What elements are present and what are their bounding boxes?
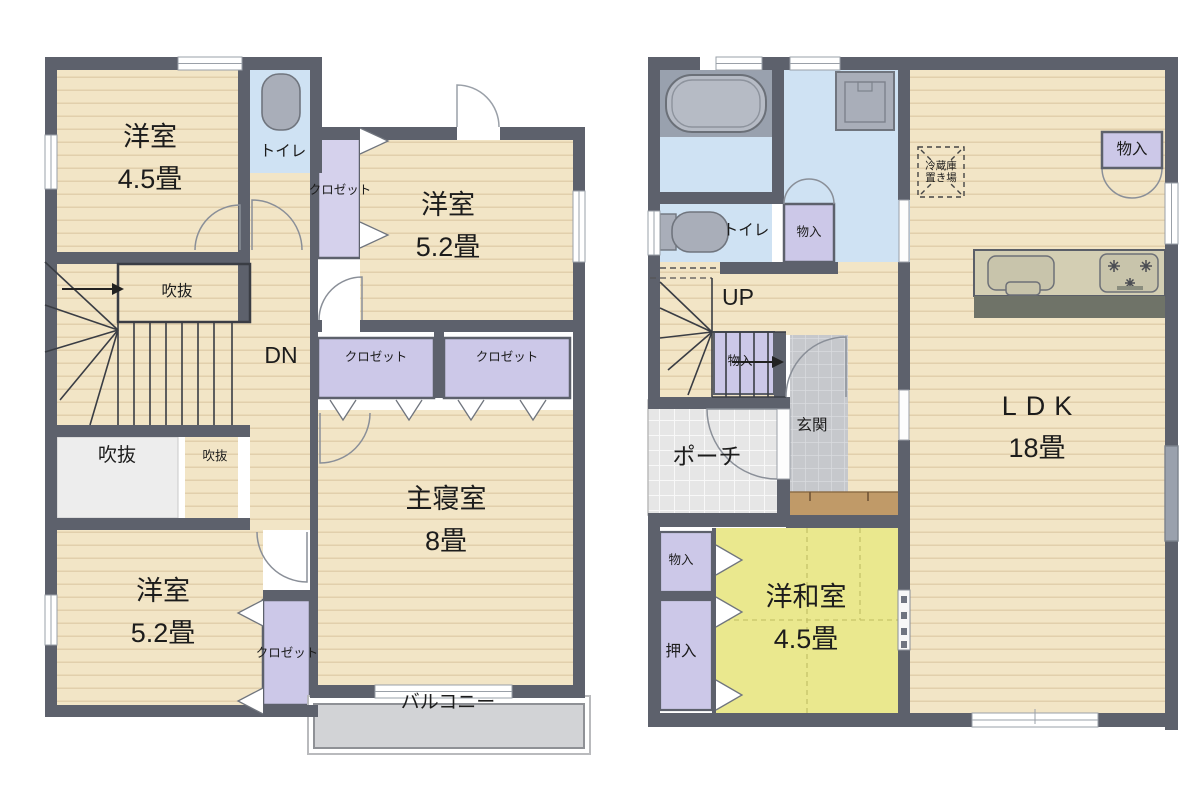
f1-kitchen: [974, 250, 1165, 318]
f2-stairs-floor: [45, 258, 250, 425]
f1-tatami-sliding-door: [898, 590, 910, 650]
f2-closet-a: [318, 338, 434, 398]
room-label-balcony: バルコニー: [401, 692, 496, 714]
room-label-void-stairs: 吹抜: [161, 283, 192, 301]
room-label-storage-ldk: 物入: [1116, 141, 1147, 159]
room-label-ldk: LDK 18畳: [993, 385, 1082, 469]
stairs-up-label: UP: [722, 284, 754, 310]
room-label-storage-tatami: 物入: [668, 553, 693, 567]
room-label-storage-hall: 物入: [796, 225, 821, 239]
room-label-porch: ポーチ: [673, 443, 742, 469]
room-label-void-small: 吹抜: [202, 449, 227, 463]
room-label-tatami-room: 洋和室 4.5畳: [766, 576, 847, 660]
room-label-closet-a: クロゼット: [345, 350, 408, 364]
f2-closet-b: [444, 338, 570, 398]
f2-toilet-fixture: [262, 74, 300, 130]
room-label-f2-toilet: トイレ: [260, 143, 307, 161]
stairs-down-label: DN: [264, 342, 297, 368]
room-label-closet-c: クロゼット: [256, 646, 319, 660]
room-label-master-bedroom: 主寝室 8畳: [406, 478, 487, 562]
room-label-west-b: 洋室 5.2畳: [416, 184, 481, 268]
room-label-storage-under-stairs: 物入: [727, 354, 752, 368]
room-label-closet-b: クロゼット: [476, 350, 539, 364]
f1-entrance-opening: [777, 409, 790, 479]
room-label-oshiire: 押入: [665, 643, 696, 661]
room-label-closet-hall: クロゼット: [309, 183, 372, 197]
floor-plan-page: 洋室 4.5畳 トイレ クロゼット 洋室 5.2畳 吹抜 DN クロゼット クロ…: [0, 0, 1200, 800]
room-label-west-a: 洋室 4.5畳: [118, 116, 183, 200]
f1-ldk-right-shutter-window: [1165, 446, 1178, 541]
room-label-f1-toilet: トイレ: [723, 222, 770, 240]
f1-entrance-tile: [790, 335, 848, 492]
room-label-west-c: 洋室 5.2畳: [131, 570, 196, 654]
f1-toilet-fixture: [672, 212, 728, 252]
floor1-plan: [648, 57, 1178, 730]
room-label-fridge-space: 冷蔵庫 置き場: [925, 160, 957, 184]
room-label-entrance: 玄関: [796, 417, 827, 435]
room-label-void-large: 吹抜: [98, 445, 136, 467]
